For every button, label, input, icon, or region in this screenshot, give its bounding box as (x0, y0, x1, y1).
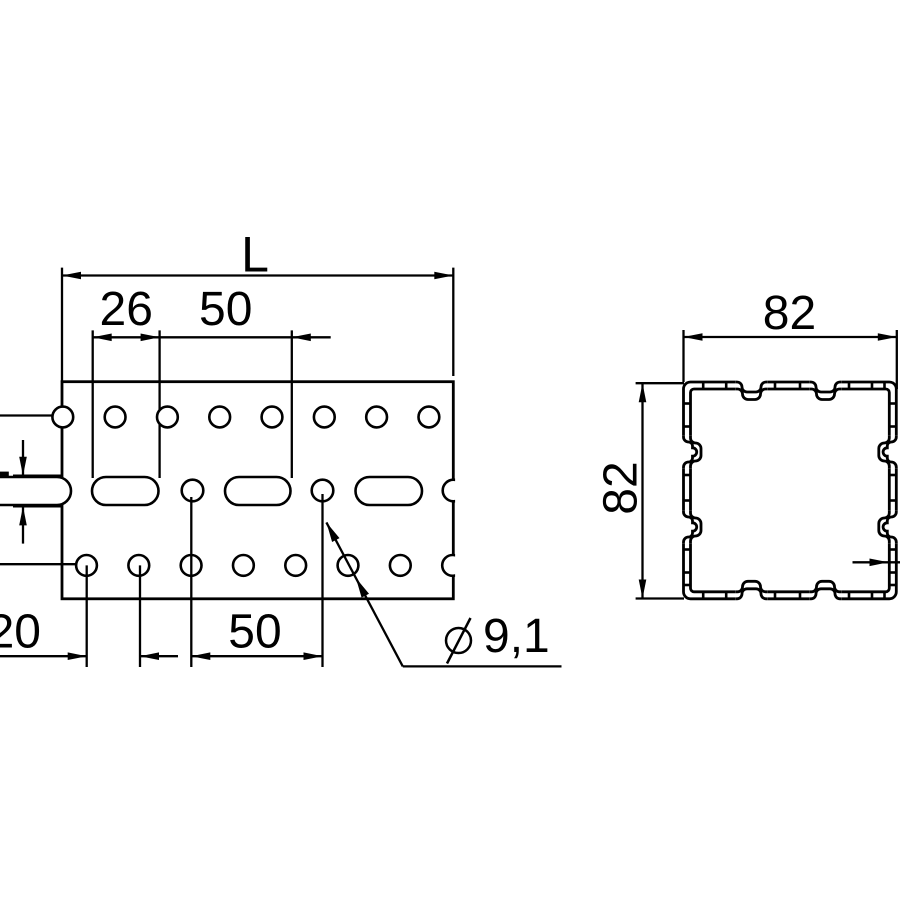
svg-text:9,1: 9,1 (483, 610, 550, 663)
svg-text:L: L (241, 227, 269, 283)
svg-text:20: 20 (0, 606, 41, 659)
svg-text:50: 50 (228, 606, 281, 659)
svg-text:50: 50 (199, 283, 252, 336)
svg-text:82: 82 (763, 287, 816, 340)
svg-text:26: 26 (100, 283, 153, 336)
svg-text:82: 82 (595, 461, 648, 514)
